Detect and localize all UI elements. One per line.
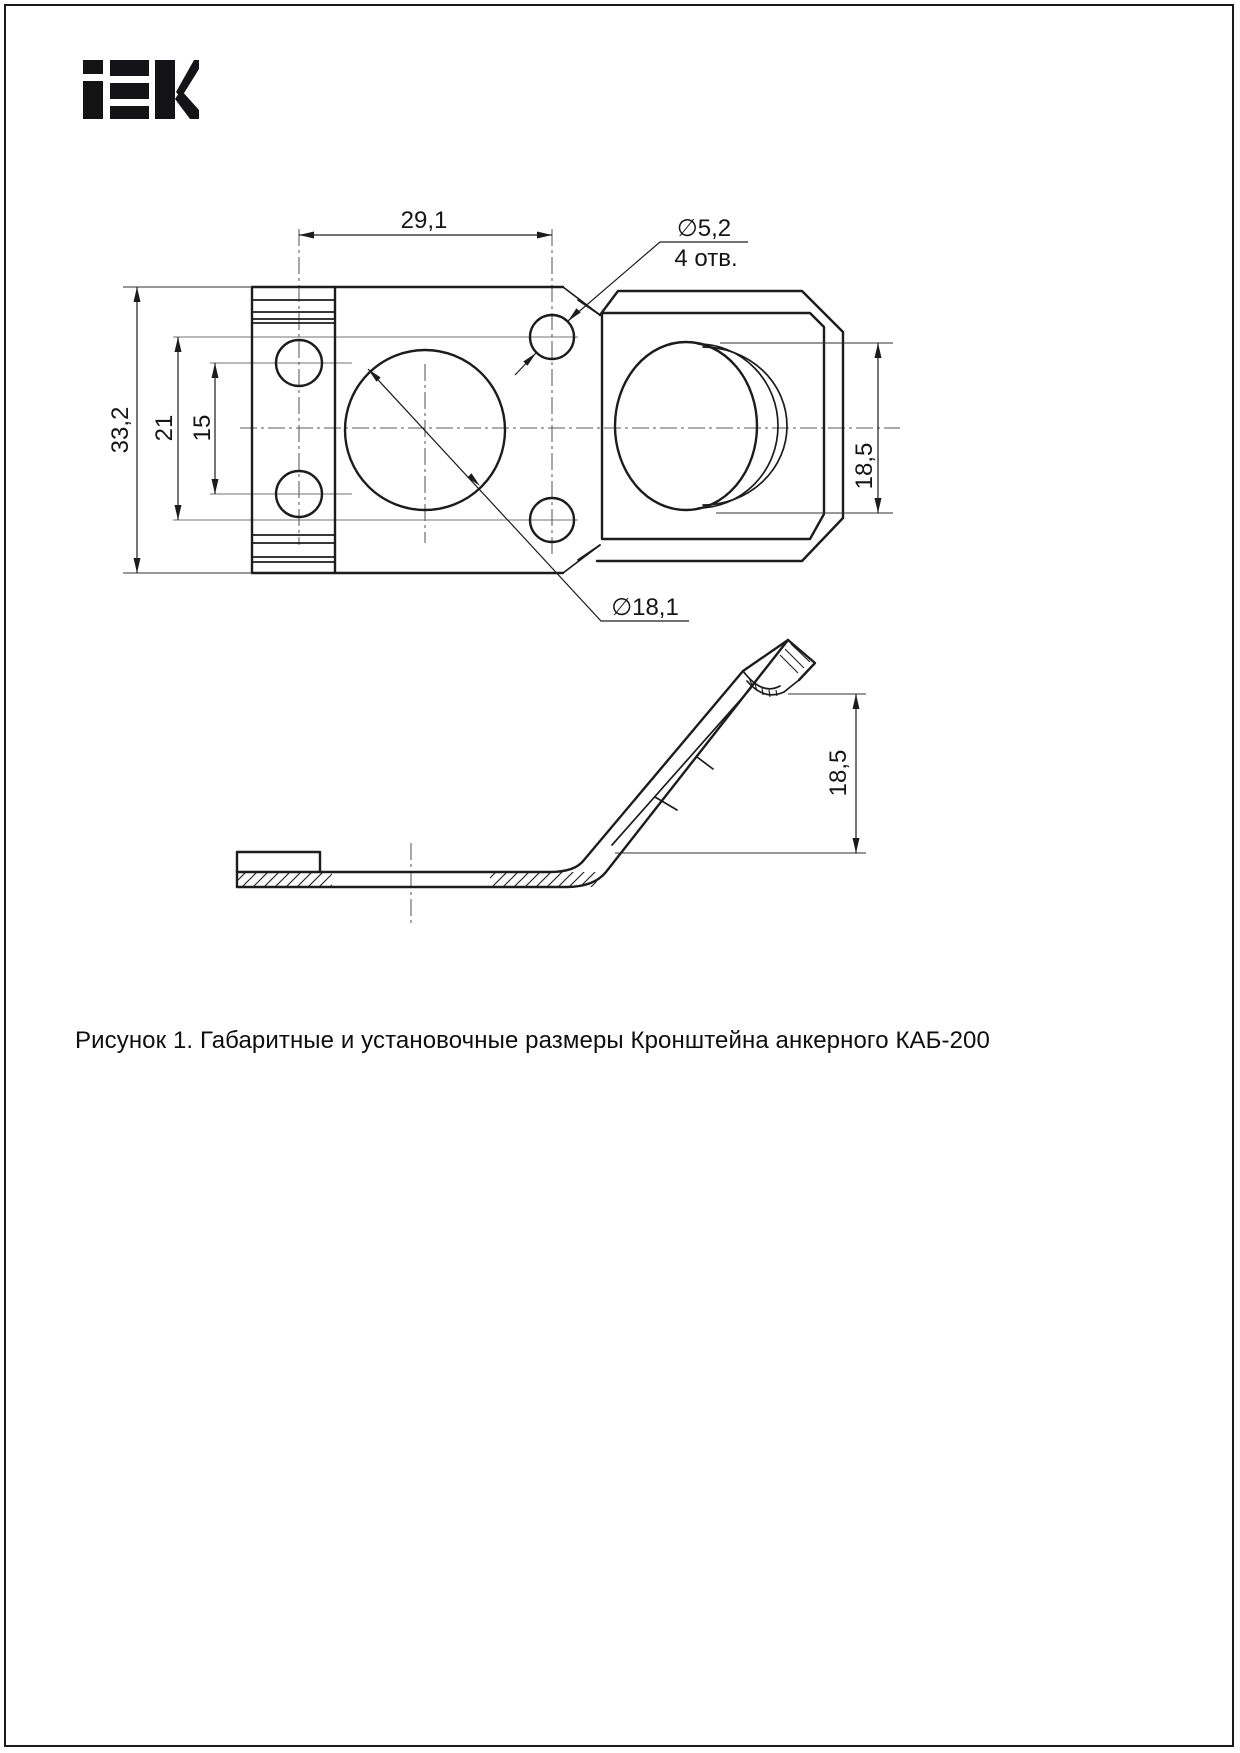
dimension-29-1: 29,1 — [299, 207, 552, 235]
document-page: IEK — [0, 0, 1240, 1753]
arm-hook — [743, 640, 815, 697]
dimension-label: ∅5,2 — [677, 215, 731, 242]
hook-tip-edge — [788, 640, 815, 680]
hook-tip-hatch — [780, 644, 810, 673]
figure-caption: Рисунок 1. Габаритные и установочные раз… — [75, 1027, 990, 1055]
dimension-label: 4 отв. — [674, 245, 737, 272]
callout-small-hole: ∅5,2 4 отв. — [515, 215, 748, 375]
dimension-label: 21 — [151, 415, 178, 442]
dimension-21: 21 — [151, 337, 178, 520]
side-view: 18,5 — [228, 640, 866, 926]
dimension-label: ∅18,1 — [611, 594, 679, 621]
front-view: 29,1 33,2 21 15 — [107, 207, 900, 621]
dimension-label: 18,5 — [851, 443, 878, 490]
saddle-hole-far-arc — [703, 347, 787, 505]
serration-lines — [252, 300, 335, 562]
clamp-block — [237, 852, 320, 872]
dimension-33-2: 33,2 — [107, 287, 252, 573]
dimension-label: 29,1 — [401, 207, 448, 234]
technical-drawing: 29,1 33,2 21 15 — [0, 0, 1240, 1753]
dimension-label: 15 — [189, 415, 216, 442]
dimension-18-5-side: 18,5 — [615, 694, 866, 853]
dimension-15: 15 — [189, 363, 216, 494]
callout-big-hole: ∅18,1 — [368, 369, 689, 621]
bend-chamfer-bottom — [563, 545, 600, 573]
dimension-label: 33,2 — [107, 407, 134, 454]
dimension-label: 18,5 — [825, 750, 852, 797]
bend-chamfer-top — [563, 287, 600, 315]
saddle-hole-oval — [615, 342, 757, 510]
base-top-and-arm-inner-edge — [237, 671, 743, 872]
bent-tab-outer-contour — [597, 291, 843, 561]
arm-edge-tick — [697, 757, 713, 769]
hook-tip-connector — [784, 680, 799, 692]
arm-inner-surface-line — [612, 688, 751, 845]
